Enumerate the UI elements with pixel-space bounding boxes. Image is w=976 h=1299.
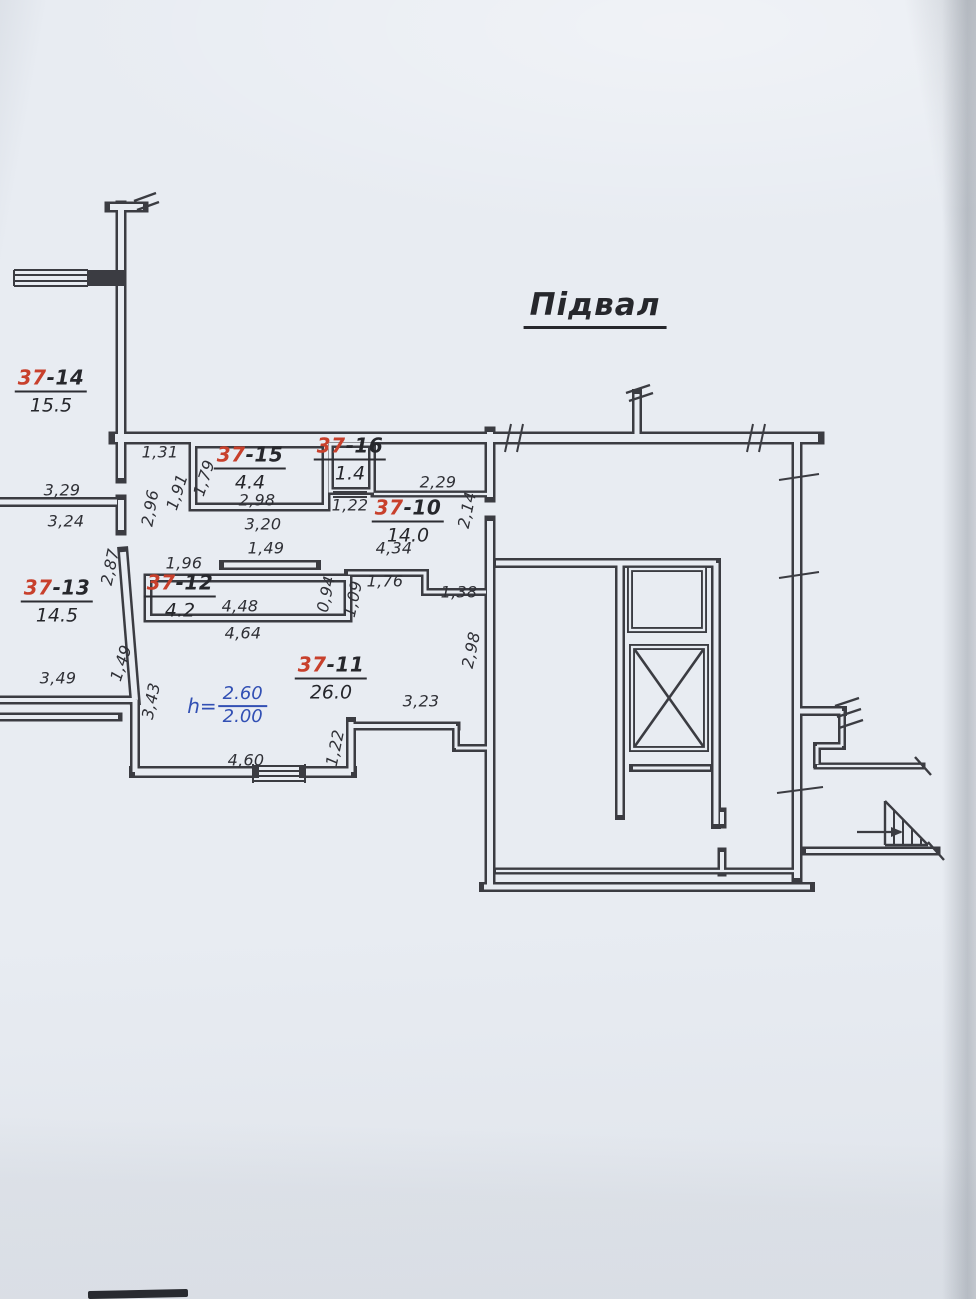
room-label-37-15: 37-15 4.4 — [214, 443, 286, 494]
room-label-37-11: 37-11 26.0 — [295, 653, 367, 704]
height-note-upper: 2.60 — [219, 685, 267, 707]
room-area: 1.4 — [314, 463, 386, 485]
room-number: 37-14 — [15, 366, 87, 393]
dimension-4-48: 4,48 — [222, 597, 259, 616]
room-number-prefix: 37 — [217, 443, 246, 467]
dimension-3-23: 3,23 — [403, 692, 440, 711]
room-number-suffix: -10 — [404, 496, 442, 520]
room-number-prefix: 37 — [317, 434, 346, 458]
room-number-suffix: -16 — [346, 434, 384, 458]
room-area: 14.5 — [21, 605, 93, 627]
height-note-prefix: h= — [187, 694, 216, 718]
dimension-1-22-a: 1,22 — [332, 496, 369, 515]
dimension-1-22-b: 1,22 — [322, 728, 348, 768]
labels-layer: Підвал 37-14 15.5 37-15 4.4 37-16 1.4 37… — [0, 0, 976, 1299]
dimension-2-29: 2,29 — [420, 473, 457, 492]
room-number-suffix: -12 — [176, 571, 214, 595]
dimension-4-60: 4,60 — [228, 751, 265, 770]
dimension-2-98-b: 2,98 — [458, 630, 484, 670]
room-area: 26.0 — [295, 682, 367, 704]
plan-title: Підвал — [524, 287, 667, 329]
room-number: 37-12 — [144, 571, 216, 598]
room-number: 37-13 — [21, 576, 93, 603]
dimension-1-49-a: 1,49 — [248, 539, 285, 558]
dimension-1-96: 1,96 — [166, 554, 203, 573]
room-number-prefix: 37 — [24, 576, 53, 600]
dimension-3-43: 3,43 — [138, 681, 164, 721]
dimension-1-09: 1,09 — [340, 579, 366, 619]
room-label-37-14: 37-14 15.5 — [15, 366, 87, 417]
room-number-prefix: 37 — [18, 366, 47, 390]
room-number-suffix: -14 — [47, 366, 85, 390]
dimension-2-98-a: 2,98 — [239, 491, 276, 510]
room-number-suffix: -11 — [327, 653, 365, 677]
dimension-2-96: 2,96 — [137, 488, 162, 528]
height-note-lower: 2.00 — [219, 707, 267, 727]
room-label-37-12: 37-12 4.2 — [144, 571, 216, 622]
dimension-2-14: 2,14 — [454, 490, 480, 530]
room-area: 4.2 — [144, 600, 216, 622]
room-number-suffix: -13 — [53, 576, 91, 600]
dimension-2-87: 2,87 — [97, 547, 123, 587]
dimension-4-64: 4,64 — [225, 624, 262, 643]
height-note: h= 2.60 2.00 — [187, 685, 267, 727]
dimension-4-34: 4,34 — [376, 539, 413, 558]
room-number: 37-10 — [372, 496, 444, 523]
room-number: 37-16 — [314, 434, 386, 461]
dimension-3-24: 3,24 — [48, 512, 85, 531]
room-label-37-16: 37-16 1.4 — [314, 434, 386, 485]
scanned-floor-plan-page: Підвал 37-14 15.5 37-15 4.4 37-16 1.4 37… — [0, 0, 976, 1299]
dimension-0-94: 0,94 — [313, 574, 339, 614]
room-number: 37-15 — [214, 443, 286, 470]
dimension-1-31: 1,31 — [142, 443, 179, 462]
dimension-1-38: 1,38 — [441, 583, 478, 602]
dimension-1-49-b: 1,49 — [106, 643, 135, 684]
room-label-37-13: 37-13 14.5 — [21, 576, 93, 627]
room-number-prefix: 37 — [375, 496, 404, 520]
dimension-1-91: 1,91 — [162, 472, 191, 513]
room-number-prefix: 37 — [147, 571, 176, 595]
room-number-prefix: 37 — [298, 653, 327, 677]
room-area: 15.5 — [15, 395, 87, 417]
room-number: 37-11 — [295, 653, 367, 680]
dimension-3-49: 3,49 — [40, 669, 77, 688]
dimension-3-29: 3,29 — [44, 481, 81, 500]
height-note-fraction: 2.60 2.00 — [219, 685, 267, 727]
dimension-1-76: 1,76 — [367, 572, 404, 591]
dimension-3-20: 3,20 — [245, 515, 282, 534]
room-number-suffix: -15 — [246, 443, 284, 467]
